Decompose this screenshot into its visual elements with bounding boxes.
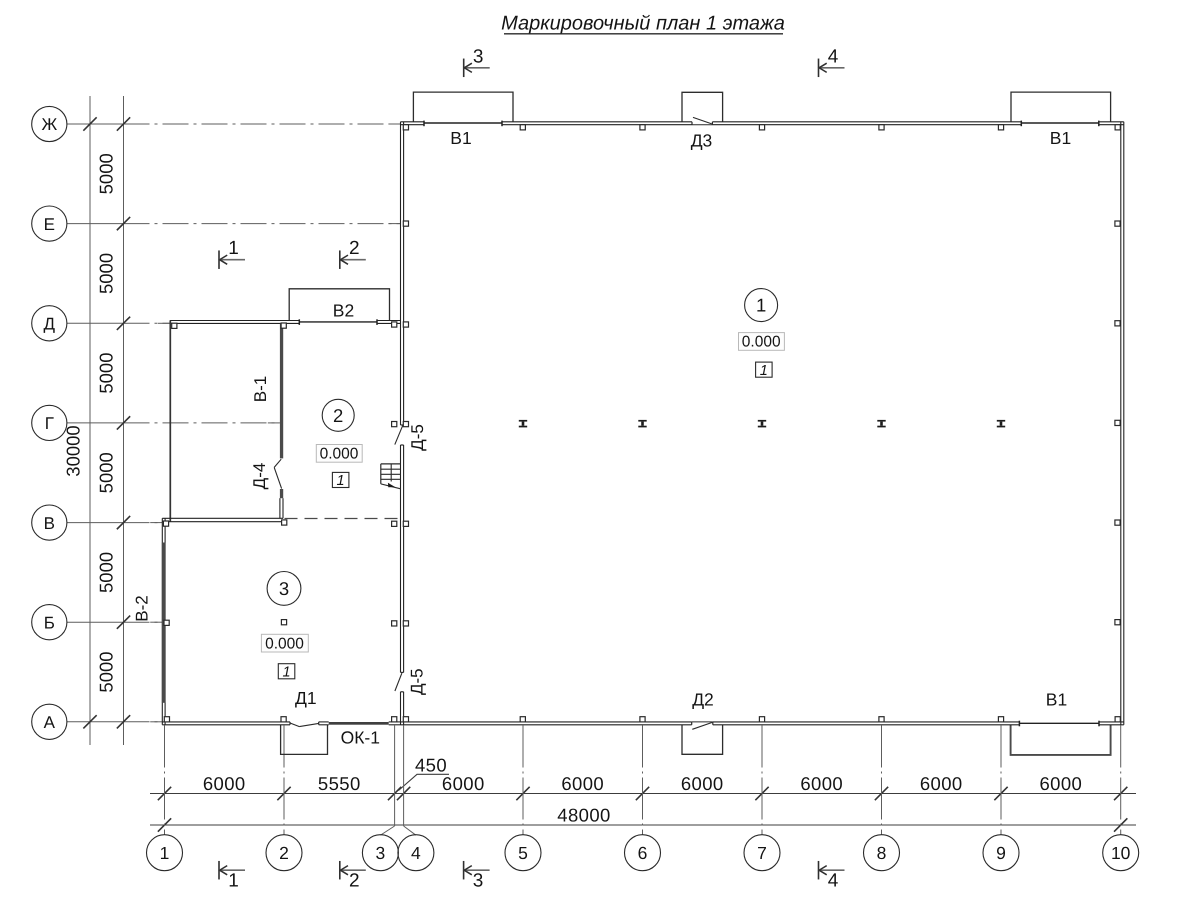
svg-text:5000: 5000 (96, 353, 117, 394)
svg-text:10: 10 (1111, 843, 1131, 863)
svg-text:В: В (44, 514, 55, 533)
svg-text:ОК-1: ОК-1 (341, 728, 380, 748)
svg-text:Д-5: Д-5 (407, 668, 426, 695)
svg-text:48000: 48000 (557, 805, 610, 826)
svg-text:Д1: Д1 (295, 688, 317, 708)
svg-text:В-1: В-1 (251, 376, 270, 402)
svg-text:6000: 6000 (203, 773, 246, 794)
svg-text:5000: 5000 (96, 153, 117, 194)
svg-text:В1: В1 (450, 128, 471, 148)
svg-text:1: 1 (160, 843, 170, 863)
svg-text:Б: Б (44, 613, 55, 632)
svg-text:1: 1 (282, 664, 290, 680)
svg-text:6000: 6000 (442, 773, 485, 794)
svg-text:4: 4 (828, 46, 839, 67)
svg-text:Д-4: Д-4 (250, 463, 269, 490)
svg-text:6000: 6000 (561, 773, 604, 794)
svg-text:В-2: В-2 (132, 595, 151, 621)
svg-text:9: 9 (996, 843, 1006, 863)
svg-text:3: 3 (376, 843, 386, 863)
svg-text:450: 450 (415, 755, 447, 776)
svg-text:Д: Д (44, 315, 56, 334)
svg-text:1: 1 (228, 871, 239, 892)
svg-text:В1: В1 (1046, 690, 1067, 710)
svg-text:Е: Е (44, 215, 55, 234)
svg-text:Ж: Ж (41, 115, 57, 134)
svg-text:2: 2 (333, 405, 343, 426)
svg-text:5: 5 (518, 843, 528, 863)
svg-text:0.000: 0.000 (742, 334, 781, 351)
svg-text:1: 1 (756, 295, 766, 316)
svg-text:5000: 5000 (96, 253, 117, 294)
svg-text:4: 4 (828, 871, 839, 892)
svg-text:30000: 30000 (63, 425, 84, 476)
svg-text:6: 6 (638, 843, 648, 863)
svg-text:7: 7 (757, 843, 767, 863)
svg-text:6000: 6000 (800, 773, 843, 794)
svg-text:2: 2 (279, 843, 289, 863)
svg-text:Д3: Д3 (691, 131, 713, 151)
svg-text:4: 4 (411, 843, 421, 863)
svg-text:3: 3 (473, 46, 484, 67)
svg-text:В1: В1 (1050, 128, 1071, 148)
svg-text:3: 3 (279, 578, 289, 599)
svg-text:В2: В2 (333, 301, 354, 321)
svg-text:2: 2 (349, 238, 360, 259)
svg-text:Г: Г (45, 414, 54, 433)
svg-text:5000: 5000 (96, 552, 117, 593)
svg-text:6000: 6000 (681, 773, 724, 794)
svg-text:1: 1 (228, 238, 239, 259)
svg-text:Маркировочный план 1 этажа: Маркировочный план 1 этажа (501, 13, 785, 35)
svg-text:8: 8 (877, 843, 887, 863)
svg-text:А: А (44, 713, 56, 732)
svg-text:1: 1 (337, 473, 345, 489)
svg-text:2: 2 (349, 871, 360, 892)
svg-text:Д2: Д2 (692, 690, 714, 710)
svg-text:3: 3 (473, 871, 484, 892)
svg-text:1: 1 (760, 363, 768, 379)
svg-text:Д-5: Д-5 (408, 424, 427, 451)
svg-text:5550: 5550 (318, 773, 361, 794)
svg-text:5000: 5000 (96, 452, 117, 493)
svg-text:0.000: 0.000 (265, 635, 304, 652)
svg-text:0.000: 0.000 (320, 446, 359, 463)
svg-text:5000: 5000 (96, 651, 117, 692)
svg-text:6000: 6000 (1039, 773, 1082, 794)
svg-text:6000: 6000 (920, 773, 963, 794)
